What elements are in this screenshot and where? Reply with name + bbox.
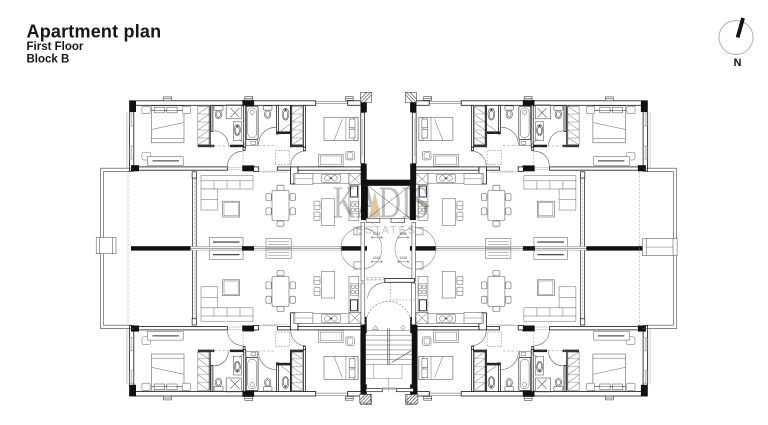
svg-text:Block B: Block B (27, 53, 70, 65)
svg-text:1048: 1048 (400, 256, 408, 260)
svg-text:First Floor: First Floor (27, 41, 84, 53)
svg-text:Apartment plan: Apartment plan (27, 22, 162, 42)
svg-text:ESTATES: ESTATES (356, 225, 417, 237)
svg-text:N: N (734, 57, 742, 69)
svg-text:1528: 1528 (373, 256, 381, 260)
svg-text:KADIS: KADIS (333, 177, 429, 228)
